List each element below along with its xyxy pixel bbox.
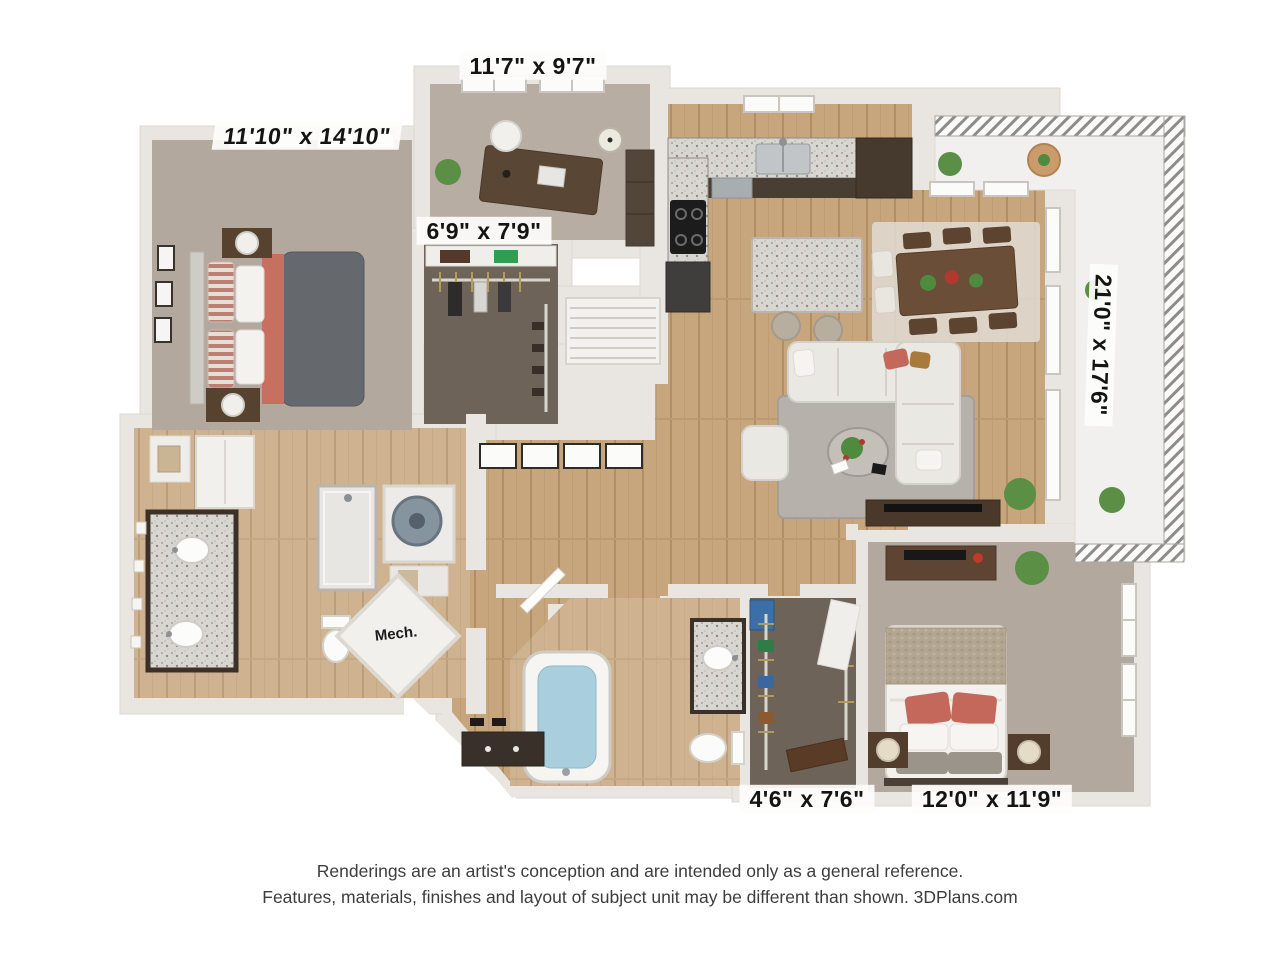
table-lamp [1018,741,1040,763]
bed-headboard [190,252,204,404]
hanging-clothes [498,282,511,312]
shoes [492,718,506,726]
dishwasher [712,178,752,198]
window [1046,208,1060,500]
sink [175,537,209,563]
dimension-label-master-bedroom: 11'10" x 14'10" [212,122,403,150]
balcony-plant [1099,487,1125,513]
hanging-clothes [758,676,774,688]
basket [158,446,180,472]
floor-plan-rendering [0,0,1280,960]
laptop [538,166,566,187]
table-lamp [222,394,244,416]
sofa-pillow [793,349,816,377]
sofa-pillow [916,450,942,470]
dimension-label-living-area: 21'0" x 17'6" [1084,264,1118,426]
bar-stool [772,312,800,340]
shoe-cabinet [462,732,544,766]
hanging-clothes [448,282,462,316]
hanging-clothes [474,282,487,312]
cooktop [670,200,706,254]
bag-on-shelf [440,250,470,263]
potted-plant [1015,551,1049,585]
accent-pillow-red [951,692,998,726]
toilet [690,732,744,764]
armchair [742,426,788,480]
tv-console [866,500,1000,526]
sink [169,621,203,647]
balcony-railing-bottom [1075,544,1184,562]
laundry-closet-door [566,298,660,364]
potted-plant [435,159,461,185]
table-lamp [877,739,899,761]
faucet [779,138,787,146]
bed-pillow [950,724,998,750]
dimension-label-second-bedroom: 12'0" x 11'9" [912,785,1072,813]
storage-bin [750,600,774,630]
balcony-railing-top [935,116,1185,136]
disclaimer-line-1: Renderings are an artist's conception an… [0,858,1280,884]
hanging-clothes [758,640,774,652]
bar-stool [814,316,842,344]
tub-faucet [562,768,570,776]
table-lamp [236,232,258,254]
potted-plant [1004,478,1036,510]
disclaimer-line-2: Features, materials, finishes and layout… [0,884,1280,910]
dimension-label-office: 11'7" x 9'7" [459,52,606,80]
dining-chair-cream [874,286,896,313]
dimension-label-walk-in-closet: 6'9" x 7'9" [417,217,552,245]
refrigerator [666,262,710,312]
window [744,96,814,112]
sink [703,646,733,670]
bag-on-shelf [494,250,518,263]
accent-pillow-gold [909,351,931,370]
accent-pillow-red [904,691,952,727]
shoes [470,718,484,726]
pantry-cabinet [856,138,912,198]
balcony-plant [938,152,962,176]
shower-head [344,494,352,502]
tv [884,504,982,512]
bed-knit-throw [886,628,1006,684]
bookshelf [626,150,654,246]
bed-comforter [282,252,364,406]
floor-walkin-closet [424,244,558,424]
floorplan-page: 11'7" x 9'7" 11'10" x 14'10" 6'9" x 7'9"… [0,0,1280,960]
desk-chair [491,121,521,151]
bathtub-water [538,666,596,768]
tv [904,550,966,560]
kitchen-island [752,238,862,312]
hanging-clothes [758,712,774,724]
wall-art-frames [155,246,174,342]
dimension-label-second-bath: 4'6" x 7'6" [740,785,875,813]
dining-chair-cream [872,250,894,277]
bed-coral-throw [262,254,284,404]
lumbar-pillow [948,752,1002,774]
balcony-railing-right [1164,116,1184,562]
